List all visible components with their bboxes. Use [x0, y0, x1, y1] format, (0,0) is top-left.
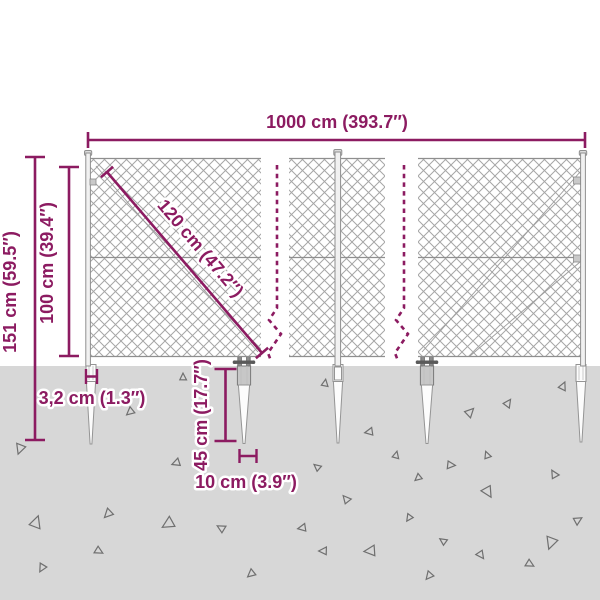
dim-spike-depth-label: 45 cm (17.7″) [191, 359, 211, 471]
diagram-canvas: 1000 cm (393.7″) 151 cm (59.5″) 100 cm (… [0, 0, 600, 600]
dim-post-thickness-label: 3,2 cm (1.3″) [39, 388, 146, 408]
break-mark-right [395, 165, 408, 361]
dim-total-width-label: 1000 cm (393.7″) [266, 112, 408, 132]
fence-panel-left [88, 158, 261, 357]
break-mark-left [268, 165, 281, 361]
fence-post-middle [334, 150, 342, 367]
dim-fence-height: 100 cm (39.4″) [37, 167, 79, 356]
fence-panel-right [418, 158, 583, 357]
dim-overall-height-label: 151 cm (59.5″) [0, 231, 20, 353]
fence-dimension-diagram: 1000 cm (393.7″) 151 cm (59.5″) 100 cm (… [0, 0, 600, 600]
dim-spike-width-label: 10 cm (3.9″) [195, 472, 297, 492]
dim-fence-height-label: 100 cm (39.4″) [37, 202, 57, 324]
dim-total-width: 1000 cm (393.7″) [88, 112, 585, 148]
